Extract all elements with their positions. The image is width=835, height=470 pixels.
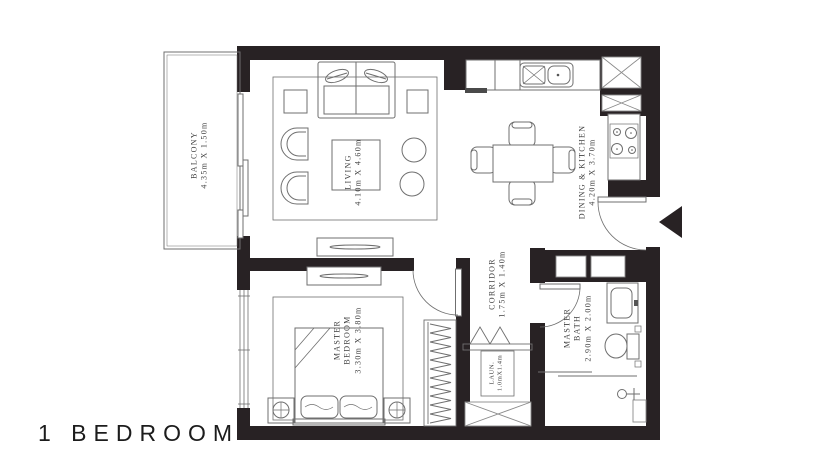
label-corridor: CORRIDOR 1.75m X 1.40m [488,250,509,317]
room-dims: 4.20m X 3.70m [588,125,598,220]
stove [608,114,640,180]
wall-stove-stub [608,180,660,197]
floorplan-drawing [0,0,835,470]
bath-niche-right [591,256,625,277]
label-laundry: LAUN. 1.0mX1.4m [489,355,506,391]
room-dims: 2.90m X 2.00m [583,294,593,361]
room-name: BATH [573,294,583,361]
room-name: LAUN. [489,355,497,391]
round-stool [400,172,424,196]
nightstand-right [384,398,410,423]
shower-head [618,388,641,400]
laundry-bifold-door [463,327,532,350]
bedroom-door [413,269,462,316]
dining-chair [550,147,575,173]
toilet [605,326,641,367]
wall-corridor-bath-post [530,248,545,283]
room-name: BALCONY [190,121,200,188]
dining-table-set [471,122,575,205]
balcony-sliding-door [238,94,248,238]
round-stool [402,138,426,162]
counter-handle [465,88,487,93]
wall-bottom [237,426,660,440]
side-table-right [407,90,428,113]
label-dining-kitchen: DINING & KITCHEN 4.20m X 3.70m [578,125,599,220]
room-name: CORRIDOR [488,250,498,317]
dining-chair [509,122,535,147]
plan-title: 1 BEDROOM [38,420,239,447]
furniture [164,52,646,426]
wardrobe [424,320,456,426]
label-living: LIVING 4.10m X 4.60m [344,138,365,205]
armchair [281,128,308,160]
room-dims: 1.0mX1.4m [497,355,505,391]
room-dims: 4.35m X 1.50m [200,121,210,188]
tv-console-living [317,238,393,256]
label-master-bedroom: MASTER BEDROOM 3.30m X 3.80m [332,306,363,373]
room-name: LIVING [344,138,354,205]
shower-screen [538,372,637,376]
room-name: MASTER [332,306,342,373]
entrance-arrow-icon [659,206,682,238]
room-dims: 3.30m X 3.80m [353,306,363,373]
label-balcony: BALCONY 4.35m X 1.50m [190,121,211,188]
vanity-sink [607,283,638,323]
room-name: DINING & KITCHEN [578,125,588,220]
room-name: BEDROOM [343,306,353,373]
bedroom-window [238,290,250,408]
label-master-bath: MASTER BATH 2.90m X 2.00m [562,294,593,361]
room-dims: 4.10m X 4.60m [354,138,364,205]
dining-chair [509,180,535,205]
shower-corner-niche [633,400,646,422]
dining-table [493,145,553,182]
wall-kitchen-stub [444,46,466,90]
wall-left-top-post [237,46,250,92]
armchair [281,172,308,204]
side-table-left [284,90,307,113]
wall-bath-left [530,323,545,426]
dining-chair [471,147,496,173]
bath-niche-left [556,256,586,277]
entrance-door [598,197,646,250]
nightstand-left [268,398,294,423]
kitchen-counter [466,60,600,90]
room-dims: 1.75m X 1.40m [498,250,508,317]
room-name: MASTER [562,294,572,361]
tv-console-bedroom [307,267,381,285]
floorplan-page: BALCONY 4.35m X 1.50m LIVING 4.10m X 4.6… [0,0,835,470]
sofa [318,62,395,118]
